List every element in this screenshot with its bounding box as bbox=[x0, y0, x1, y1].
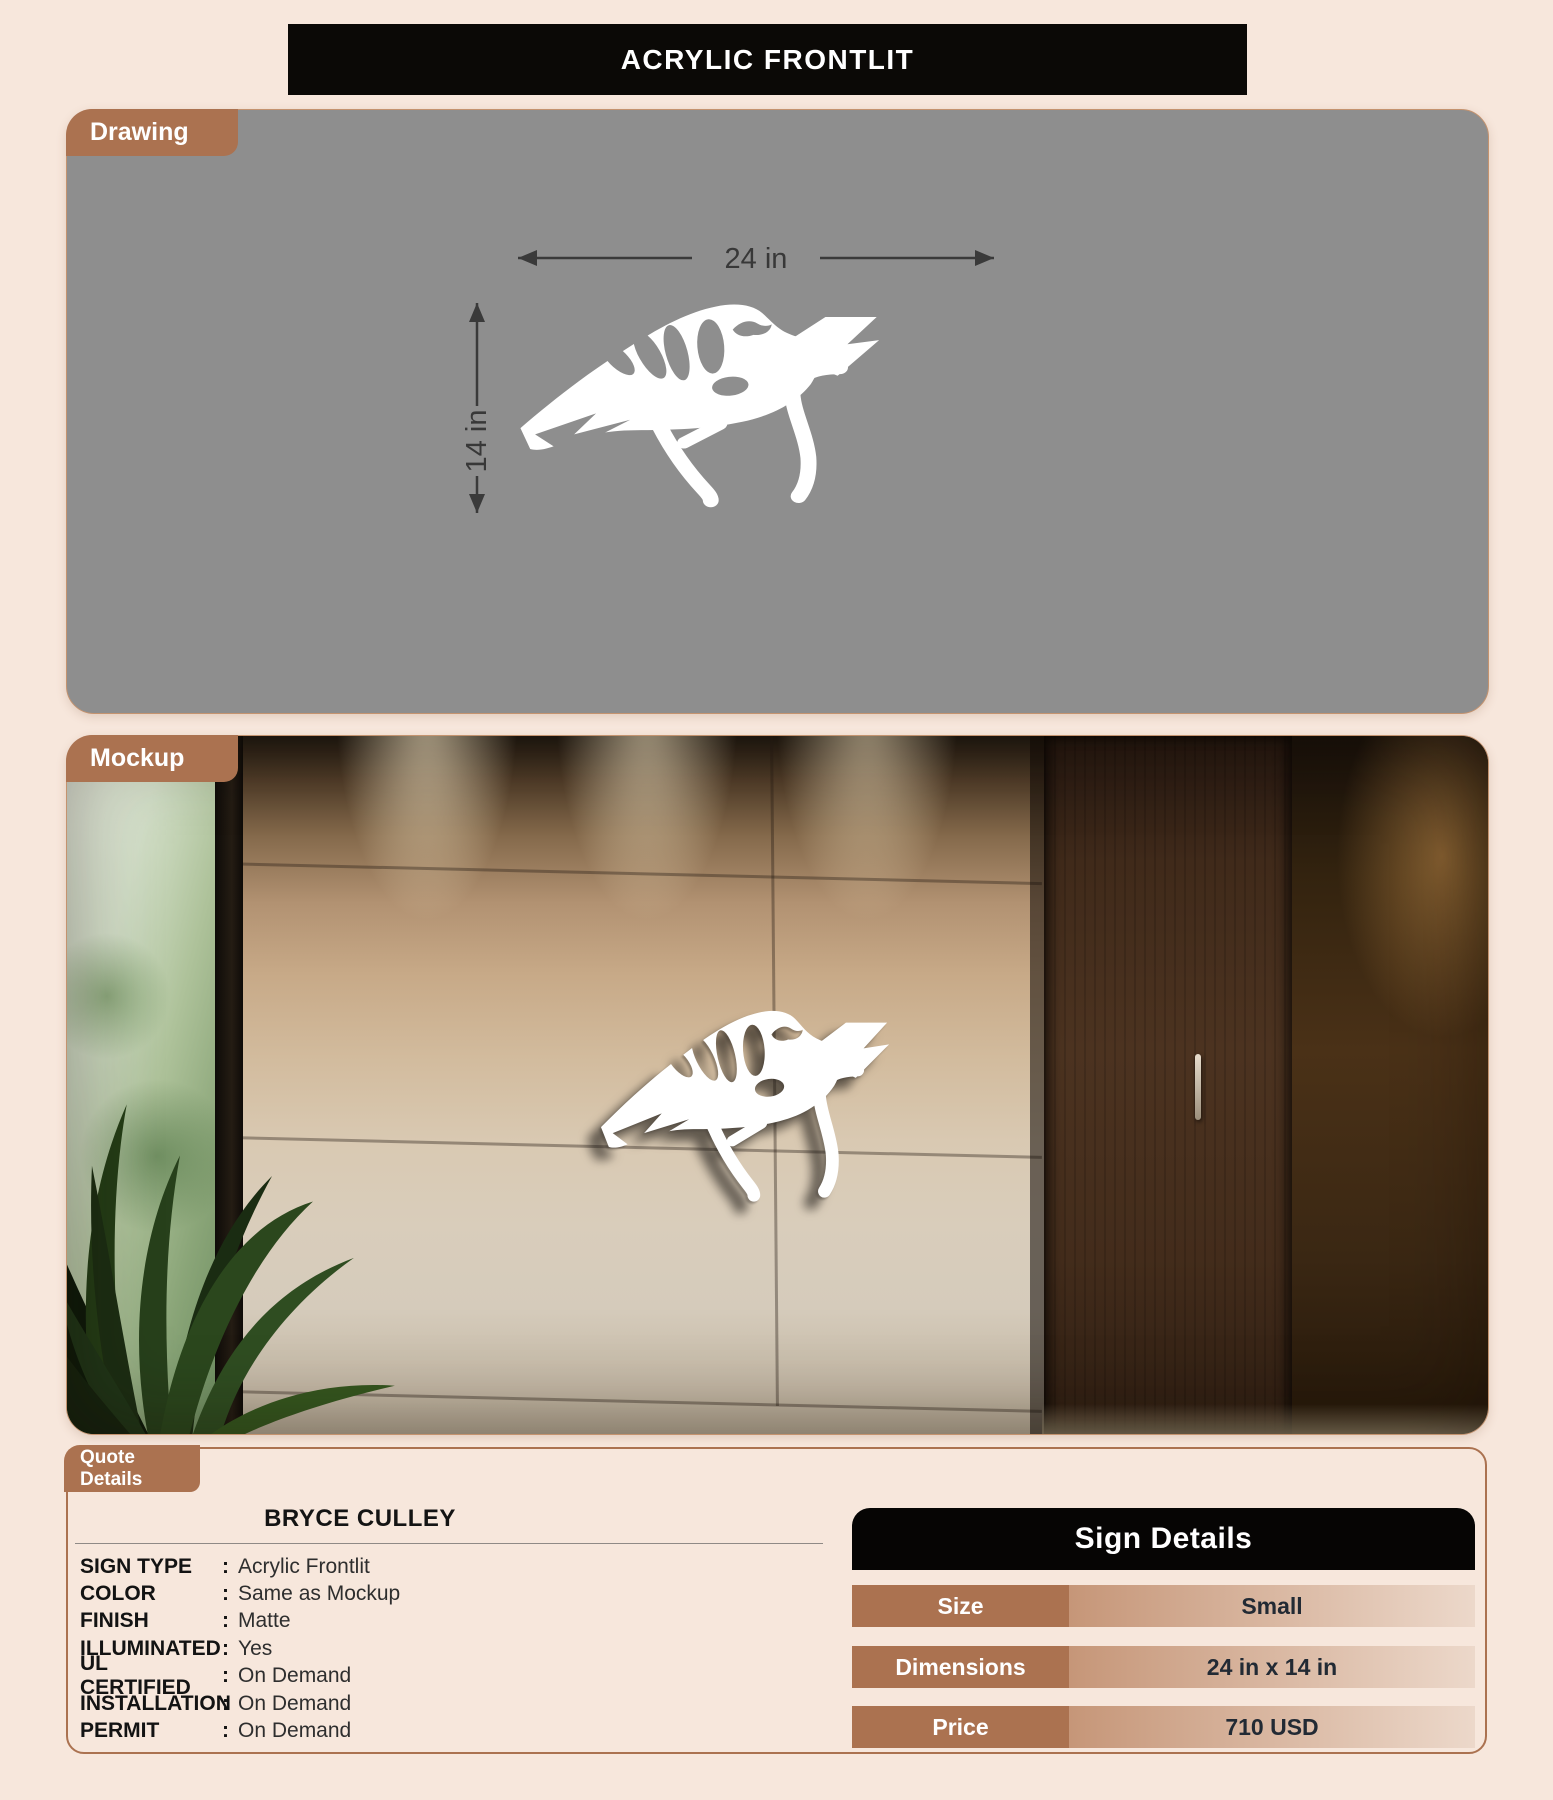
sign-details-row-label: Dimensions bbox=[852, 1646, 1069, 1688]
field-value: Same as Mockup bbox=[238, 1582, 400, 1606]
field-separator: : bbox=[222, 1555, 238, 1579]
quote-details-tab: Quote Details bbox=[64, 1445, 200, 1492]
field-value: On Demand bbox=[238, 1692, 351, 1716]
field-value: Yes bbox=[238, 1637, 272, 1661]
field-value: Matte bbox=[238, 1609, 291, 1633]
field-separator: : bbox=[222, 1664, 238, 1688]
quote-field-row: INSTALLATION : On Demand bbox=[80, 1690, 720, 1717]
sign-details-row: Price 710 USD bbox=[852, 1706, 1475, 1748]
field-value: On Demand bbox=[238, 1664, 351, 1688]
quote-field-row: SIGN TYPE : Acrylic Frontlit bbox=[80, 1553, 720, 1580]
field-label: COLOR bbox=[80, 1582, 222, 1606]
field-label: FINISH bbox=[80, 1609, 222, 1633]
mockup-tab: Mockup bbox=[66, 735, 238, 782]
quote-field-row: UL CERTIFIED : On Demand bbox=[80, 1663, 720, 1690]
field-separator: : bbox=[222, 1692, 238, 1716]
sign-details-row-label: Price bbox=[852, 1706, 1069, 1748]
quote-field-row: FINISH : Matte bbox=[80, 1608, 720, 1635]
drawing-tab-label: Drawing bbox=[90, 118, 189, 147]
quote-field-row: COLOR : Same as Mockup bbox=[80, 1580, 720, 1607]
field-separator: : bbox=[222, 1637, 238, 1661]
sign-details-row-value: 710 USD bbox=[1069, 1706, 1475, 1748]
sign-details-row: Size Small bbox=[852, 1585, 1475, 1627]
sign-details-row-label: Size bbox=[852, 1585, 1069, 1627]
field-value: On Demand bbox=[238, 1719, 351, 1743]
interior-scene bbox=[67, 736, 1488, 1434]
field-label: INSTALLATION bbox=[80, 1692, 222, 1716]
drawing-canvas: 24 in 14 in bbox=[66, 109, 1489, 714]
field-separator: : bbox=[222, 1719, 238, 1743]
field-label: PERMIT bbox=[80, 1719, 222, 1743]
width-dimension-label: 24 in bbox=[725, 243, 788, 275]
sign-logo-drawing bbox=[518, 294, 884, 514]
field-separator: : bbox=[222, 1609, 238, 1633]
sign-details-row-value: 24 in x 14 in bbox=[1069, 1646, 1475, 1688]
mockup-tab-label: Mockup bbox=[90, 744, 184, 773]
quote-details-tab-label: Quote Details bbox=[80, 1447, 200, 1491]
quote-fields-list: SIGN TYPE : Acrylic Frontlit COLOR : Sam… bbox=[80, 1553, 720, 1745]
photo-vignette bbox=[67, 736, 1488, 1434]
mockup-photo bbox=[66, 735, 1489, 1435]
drawing-tab: Drawing bbox=[66, 109, 238, 156]
page-title: ACRYLIC FRONTLIT bbox=[288, 24, 1247, 95]
divider bbox=[75, 1543, 823, 1544]
field-value: Acrylic Frontlit bbox=[238, 1555, 370, 1579]
customer-name: BRYCE CULLEY bbox=[75, 1505, 645, 1533]
sign-details-header: Sign Details bbox=[852, 1508, 1475, 1570]
height-dimension-label: 14 in bbox=[461, 410, 493, 473]
field-separator: : bbox=[222, 1582, 238, 1606]
quote-field-row: PERMIT : On Demand bbox=[80, 1717, 720, 1744]
field-label: SIGN TYPE bbox=[80, 1555, 222, 1579]
sign-details-row-value: Small bbox=[1069, 1585, 1475, 1627]
technical-drawing: 24 in 14 in bbox=[67, 110, 1488, 713]
sign-details-row: Dimensions 24 in x 14 in bbox=[852, 1646, 1475, 1688]
